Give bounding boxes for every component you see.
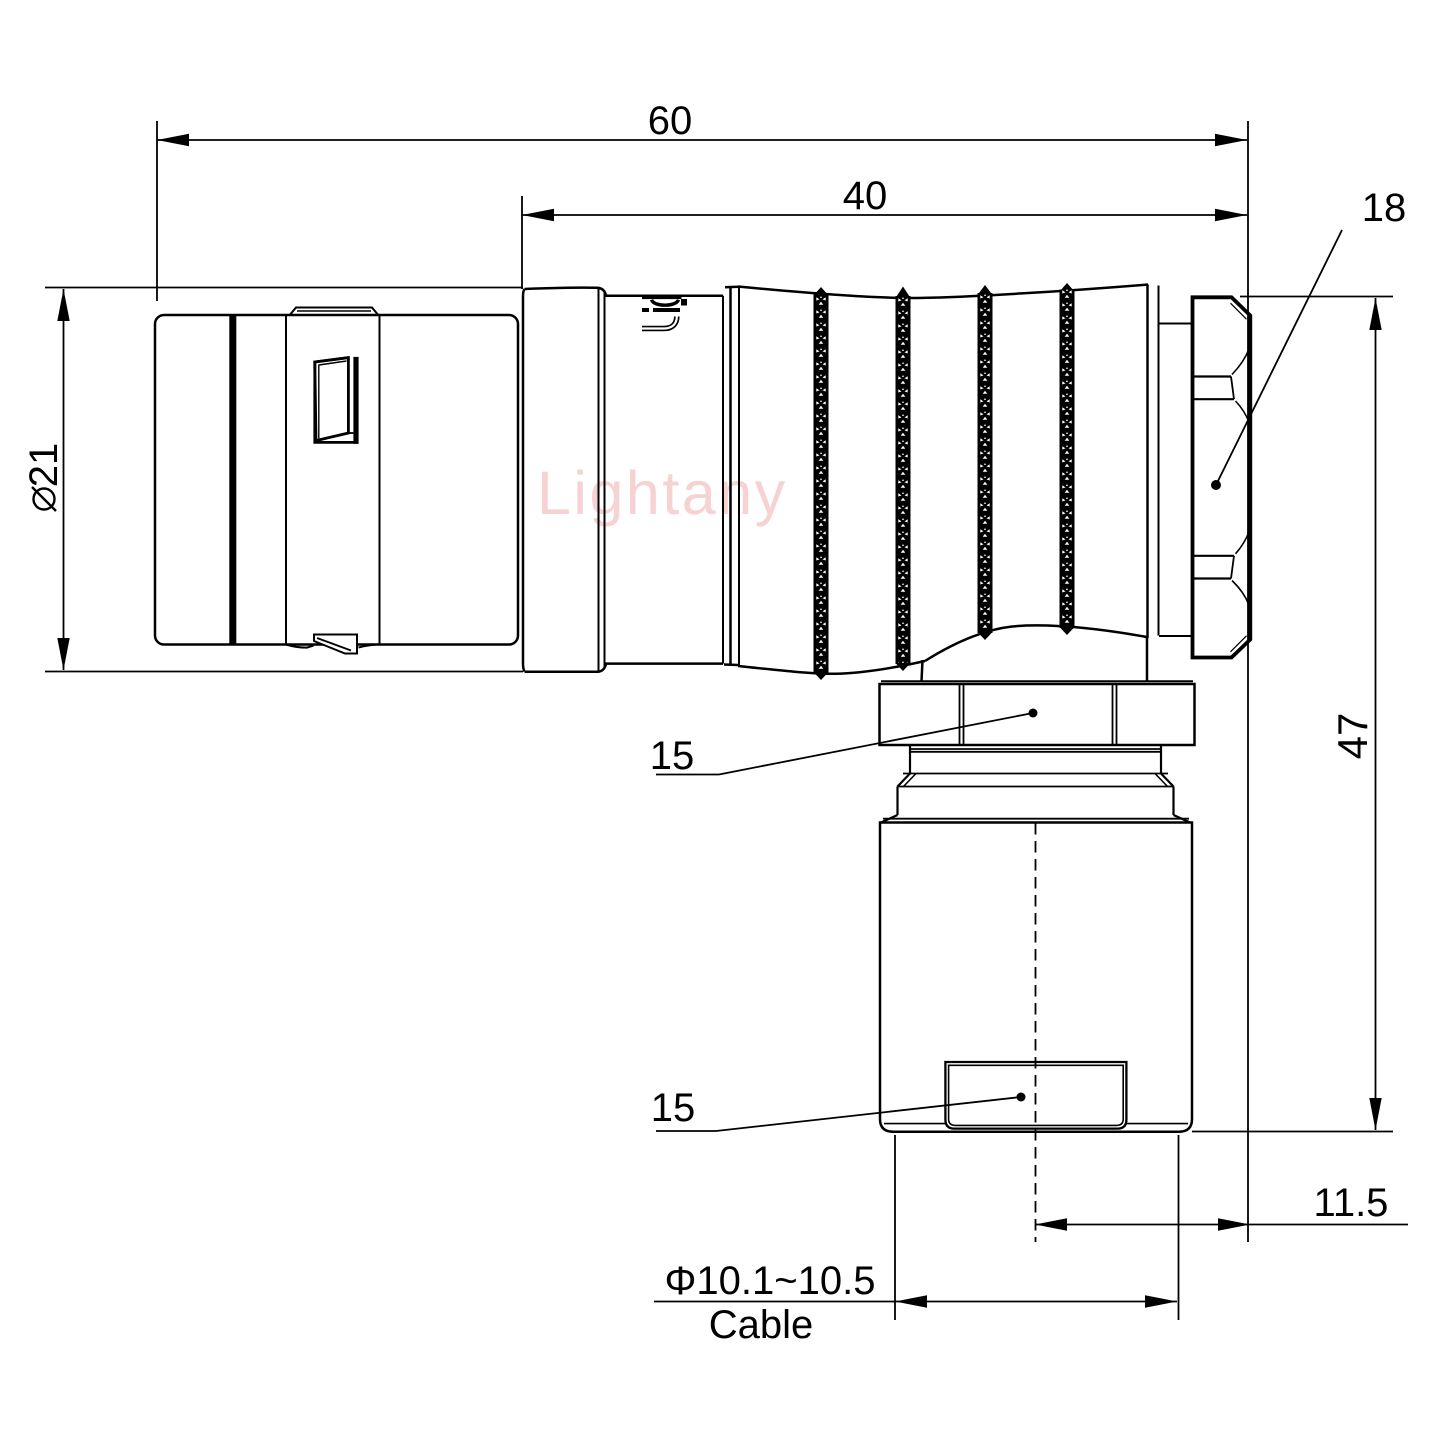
svg-text:11.5: 11.5 (1314, 1181, 1389, 1225)
svg-text:60: 60 (648, 99, 693, 143)
svg-text:15: 15 (650, 734, 695, 778)
svg-text:15: 15 (651, 1086, 696, 1130)
svg-text:47: 47 (1329, 713, 1376, 760)
svg-text:21: 21 (22, 443, 66, 488)
svg-text:Cable: Cable (709, 1303, 814, 1347)
svg-text:Lightany: Lightany (537, 459, 788, 527)
svg-text:18: 18 (1362, 186, 1407, 230)
svg-text:40: 40 (843, 174, 888, 218)
svg-text:Φ10.1~10.5: Φ10.1~10.5 (665, 1259, 876, 1303)
